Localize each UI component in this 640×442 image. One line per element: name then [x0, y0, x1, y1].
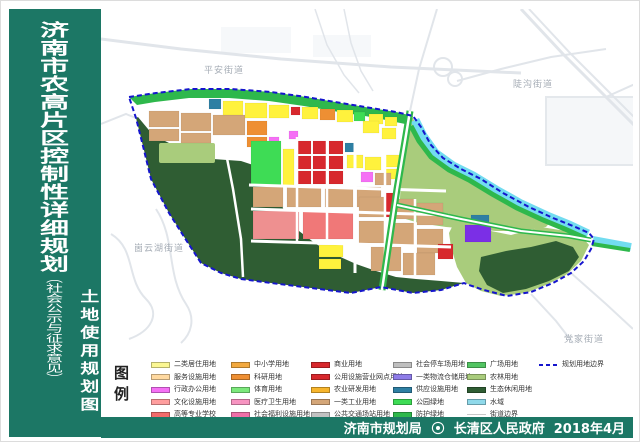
agency-left: 济南市规划局 [344, 418, 422, 437]
plan-title: 济南市农高片区控制性详细规划（社会公示与征求意见） [35, 21, 64, 383]
color-swatch [311, 387, 330, 393]
legend-item: 中小学用地 [231, 361, 310, 368]
color-swatch [151, 374, 170, 380]
color-swatch [151, 362, 170, 368]
planning-map-svg [101, 9, 633, 351]
color-swatch [393, 362, 412, 368]
page-frame: 济南市农高片区控制性详细规划（社会公示与征求意见） 土地使用规划图 [0, 0, 640, 442]
legend-item: 体育用地 [231, 386, 310, 393]
footer-date: 2018年4月 [554, 418, 625, 437]
color-swatch [393, 399, 412, 405]
color-swatch [393, 387, 412, 393]
government-seal-icon [431, 421, 445, 435]
color-swatch [231, 374, 250, 380]
legend-item: 供应设施用地 [393, 386, 472, 393]
legend-label: 商业用地 [334, 361, 362, 368]
legend-item: 公园绿地 [393, 399, 472, 406]
legend-item: 广场用地 [467, 361, 532, 368]
plan-title-main: 济南市农高片区控制性详细规划 [33, 21, 67, 273]
dashed-line-swatch [539, 364, 558, 366]
legend-label: 医疗卫生用地 [254, 399, 296, 406]
legend-label: 规划用地边界 [562, 361, 604, 368]
legend-label: 社会停车场用地 [416, 361, 465, 368]
color-swatch [311, 399, 330, 405]
color-swatch [231, 387, 250, 393]
legend-item: 行政办公用地 [151, 386, 216, 393]
legend-item: 公用设施营业网点用地 [311, 374, 404, 381]
color-swatch [467, 387, 486, 393]
street-label-pingan: 平安街道 [204, 63, 244, 76]
street-label-guyunhu: 崮云湖街道 [134, 241, 184, 254]
plan-title-suffix: （社会公示与征求意见） [42, 273, 61, 383]
color-swatch [393, 374, 412, 380]
legend-label: 行政办公用地 [174, 386, 216, 393]
legend-label: 服务设施用地 [174, 374, 216, 381]
legend-label: 一类工业用地 [334, 399, 376, 406]
legend-label: 农林用地 [490, 374, 518, 381]
color-swatch [231, 399, 250, 405]
legend-label: 生态休闲用地 [490, 386, 532, 393]
legend-item: 农业研发用地 [311, 386, 404, 393]
legend-label: 科研用地 [254, 374, 282, 381]
legend-label: 二类居住用地 [174, 361, 216, 368]
color-swatch [467, 399, 486, 405]
legend-item: 生态休闲用地 [467, 386, 532, 393]
legend-label: 广场用地 [490, 361, 518, 368]
map-area: 平安街道 陡沟街道 崮云湖街道 党家街道 [101, 9, 633, 351]
map-type-label: 土地使用规划图 [79, 289, 98, 415]
legend-item: 医疗卫生用地 [231, 399, 310, 406]
line-swatch [467, 414, 486, 415]
color-swatch [151, 399, 170, 405]
legend-column-1: 二类居住用地服务设施用地行政办公用地文化设施用地高等专业学校 [151, 361, 216, 418]
street-label-dougou: 陡沟街道 [513, 77, 553, 90]
legend-label: 文化设施用地 [174, 399, 216, 406]
legend-label: 中小学用地 [254, 361, 289, 368]
legend-column-3: 商业用地公用设施营业网点用地农业研发用地一类工业用地公共交通场站用地 [311, 361, 404, 418]
legend-label: 农业研发用地 [334, 386, 376, 393]
legend-item: 科研用地 [231, 374, 310, 381]
color-swatch [231, 362, 250, 368]
legend-label: 一类物流仓储用地 [416, 374, 472, 381]
legend-column-2: 中小学用地科研用地体育用地医疗卫生用地社会福利设施用地 [231, 361, 310, 418]
legend-item: 规划用地边界 [539, 361, 604, 368]
agency-right: 长清区人民政府 [454, 418, 545, 437]
legend: 图例 二类居住用地服务设施用地行政办公用地文化设施用地高等专业学校中小学用地科研… [101, 351, 633, 417]
legend-item: 二类居住用地 [151, 361, 216, 368]
legend-label: 供应设施用地 [416, 386, 458, 393]
legend-label: 水域 [490, 399, 504, 406]
legend-column-6: 规划用地边界 [539, 361, 604, 368]
legend-item: 农林用地 [467, 374, 532, 381]
legend-item: 一类工业用地 [311, 399, 404, 406]
legend-title: 图例 [111, 365, 132, 407]
legend-label: 体育用地 [254, 386, 282, 393]
color-swatch [467, 362, 486, 368]
color-swatch [311, 362, 330, 368]
color-swatch [467, 374, 486, 380]
legend-item: 服务设施用地 [151, 374, 216, 381]
legend-item: 一类物流仓储用地 [393, 374, 472, 381]
legend-item: 文化设施用地 [151, 399, 216, 406]
legend-item: 商业用地 [311, 361, 404, 368]
footer-bar: 济南市规划局 长清区人民政府 2018年4月 [101, 417, 633, 438]
street-label-dangjia: 党家街道 [564, 332, 604, 345]
legend-label: 公园绿地 [416, 399, 444, 406]
legend-column-4: 社会停车场用地一类物流仓储用地供应设施用地公园绿地防护绿地 [393, 361, 472, 418]
legend-column-5: 广场用地农林用地生态休闲用地水域街道边界 [467, 361, 532, 418]
legend-item: 水域 [467, 399, 532, 406]
zone-logistics [465, 225, 491, 242]
color-swatch [311, 374, 330, 380]
sidebar: 济南市农高片区控制性详细规划（社会公示与征求意见） 土地使用规划图 [9, 9, 101, 437]
legend-item: 社会停车场用地 [393, 361, 472, 368]
color-swatch [151, 387, 170, 393]
